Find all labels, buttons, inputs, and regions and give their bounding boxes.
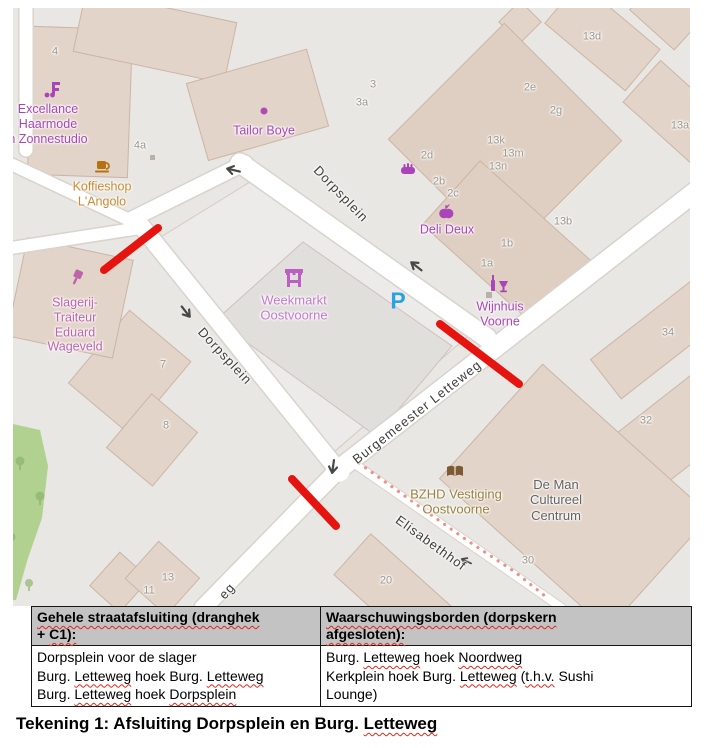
text-segment: t.h.v. [525,668,554,684]
oneway-arrow-icon [179,304,193,319]
closure-table: Gehele straatafsluiting (dranghek+ C1): … [31,606,692,707]
table-line: Lounge) [326,685,688,704]
text-segment: hoek Burg. [131,668,207,684]
closure-table-body-row: Dorpsplein voor de slagerBurg. Letteweg … [32,646,691,706]
table-header-full-closure: Gehele straatafsluiting (dranghek+ C1): [32,607,320,645]
table-line: Gehele straatafsluiting (dranghek [37,609,317,626]
text-segment: Dorpsplein [169,686,236,702]
table-line: + C1): [37,626,317,643]
text-segment: Waarschuwingsborden (dorpskern [326,609,557,625]
text-segment: afgesloten): [326,626,405,642]
text-segment: Gehele straatafsluiting (dranghek [37,609,260,625]
caption-segment: Letteweg [364,714,438,733]
text-segment: Kerkplein hoek Burg. [326,668,460,684]
table-line: Burg. Letteweg hoek Noordweg [326,648,688,667]
oneway-arrow-icon [460,556,472,566]
table-line: Burg. Letteweg hoek Dorpsplein [37,685,317,704]
text-segment: hoek [131,686,169,702]
table-line: Burg. Letteweg hoek Burg. Letteweg [37,667,317,686]
table-cell-full-closure-locations: Dorpsplein voor de slagerBurg. Letteweg … [32,646,320,706]
text-segment: Sushi [555,668,594,684]
text-segment: Letteweg [74,686,131,702]
table-header-warning-signs: Waarschuwingsborden (dorpskernafgesloten… [320,607,691,645]
park-area [13,424,48,600]
table-cell-warning-sign-locations: Burg. Letteweg hoek NoordwegKerkplein ho… [320,646,691,706]
figure-caption: Tekening 1: Afsluiting Dorpsplein en Bur… [16,714,437,734]
caption-segment: Tekening 1: Afsluiting Dorpsplein en Bur… [16,714,364,733]
text-segment: C1): [49,626,76,642]
text-segment: Letteweg [460,668,517,684]
table-line: Dorpsplein voor de slager [37,648,317,667]
text-segment: Letteweg [363,649,420,665]
bakery-bread-icon [401,163,415,174]
text-segment: Lounge) [326,686,377,702]
text-segment: + [37,626,49,642]
text-segment: Letteweg [74,668,131,684]
library-book-icon [447,466,463,476]
closure-table-header-row: Gehele straatafsluiting (dranghek+ C1): … [32,607,691,646]
table-line: Waarschuwingsborden (dorpskern [326,609,688,626]
text-segment: ( [517,668,526,684]
text-segment: Dorpsplein voor de slager [37,649,197,665]
shop-dot-icon [261,108,268,115]
text-segment: Letteweg [207,668,264,684]
text-segment: Burg. [37,668,74,684]
text-segment: hoek [420,649,458,665]
table-line: afgesloten): [326,626,688,643]
text-segment: Noordweg [458,649,522,665]
text-segment: Burg. [326,649,363,665]
table-line: Kerkplein hoek Burg. Letteweg (t.h.v. Su… [326,667,688,686]
map-drawing [13,8,690,606]
text-segment: Burg. [37,686,74,702]
map-figure: ExcellanceHaarmoden ZonnestudioKoffiesho… [13,8,690,606]
